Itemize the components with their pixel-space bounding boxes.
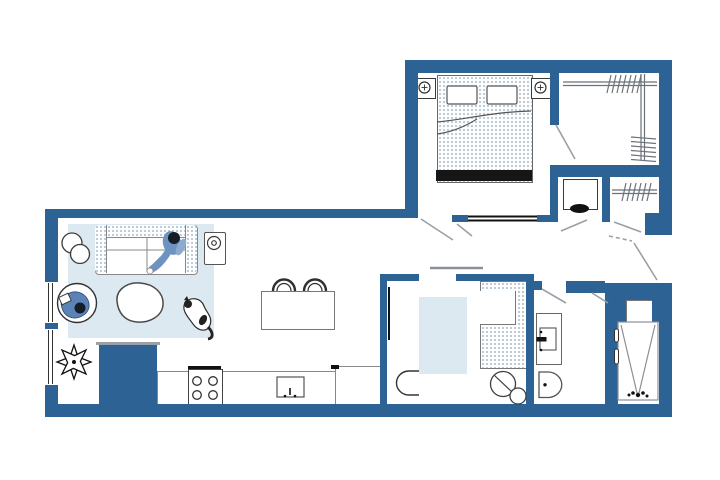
nightstand-lamps bbox=[419, 82, 546, 93]
side-table-decor bbox=[208, 237, 221, 250]
armchair-with-person bbox=[58, 284, 97, 323]
floorplan-lineart bbox=[0, 0, 720, 480]
floor-lamp bbox=[62, 233, 90, 264]
vanity-sink bbox=[537, 328, 557, 351]
bedroom-sliding-door bbox=[468, 217, 537, 221]
den-chair bbox=[396, 371, 419, 395]
shower-handle bbox=[615, 329, 619, 342]
kitchen-sink bbox=[277, 377, 304, 397]
bed-pillows bbox=[447, 86, 517, 104]
person-in-armchair-head bbox=[75, 303, 86, 314]
cat bbox=[184, 296, 212, 339]
den-side-stool bbox=[491, 372, 527, 405]
shower-stall bbox=[615, 322, 659, 400]
stove-burners bbox=[193, 377, 218, 400]
hall-closet-rod bbox=[612, 183, 657, 201]
floor-plan bbox=[0, 0, 720, 480]
bed-blanket-folds bbox=[437, 111, 531, 134]
plant bbox=[50, 338, 98, 386]
closet-rod-top bbox=[563, 75, 657, 93]
coffee-table bbox=[117, 283, 163, 322]
person-on-sofa bbox=[147, 229, 188, 274]
island-stools bbox=[273, 280, 326, 292]
toilet bbox=[539, 372, 562, 398]
shower-handle bbox=[615, 349, 619, 364]
entry-door bbox=[634, 243, 657, 280]
person-on-sofa-head bbox=[168, 232, 180, 244]
door-swing-lines bbox=[421, 125, 657, 303]
closet-rod-right bbox=[631, 74, 656, 162]
window-glazing-lines bbox=[49, 283, 53, 384]
desk-chair bbox=[570, 204, 589, 213]
